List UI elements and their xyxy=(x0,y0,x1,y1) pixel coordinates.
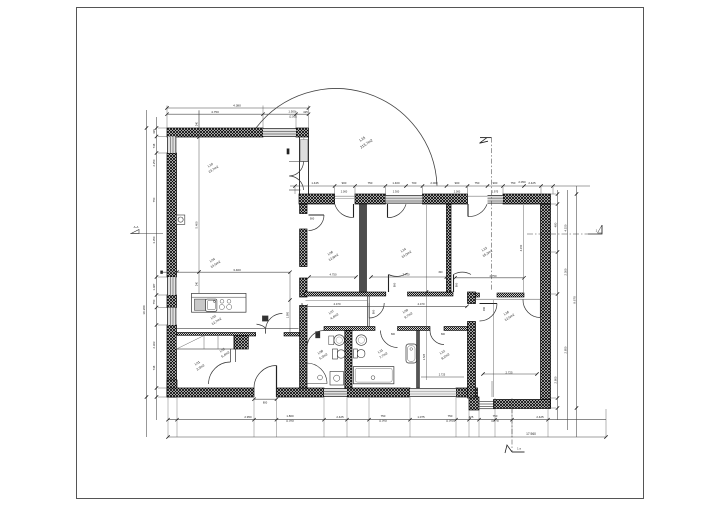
svg-text:2.000: 2.000 xyxy=(454,190,461,194)
svg-text:800: 800 xyxy=(455,282,459,287)
svg-text:1.400: 1.400 xyxy=(392,181,400,185)
svg-text:800: 800 xyxy=(263,401,268,405)
svg-text:2.425: 2.425 xyxy=(528,181,536,185)
svg-text:17.960: 17.960 xyxy=(526,432,536,436)
svg-text:1.525: 1.525 xyxy=(423,353,426,360)
svg-text:800: 800 xyxy=(391,333,396,336)
svg-text:2.850: 2.850 xyxy=(563,346,567,353)
svg-text:2.425: 2.425 xyxy=(336,415,344,419)
svg-text:800: 800 xyxy=(301,302,304,307)
svg-text:1 a: 1 a xyxy=(517,447,521,451)
svg-text:A-A: A-A xyxy=(134,225,139,229)
svg-text:4.750: 4.750 xyxy=(211,110,219,114)
svg-text:4.150: 4.150 xyxy=(563,224,567,231)
svg-text:2.250: 2.250 xyxy=(152,159,156,166)
svg-text:2.300: 2.300 xyxy=(563,268,567,275)
svg-text:3.400: 3.400 xyxy=(233,268,241,272)
svg-text:4.150: 4.150 xyxy=(519,244,523,251)
svg-text:700: 700 xyxy=(412,181,417,185)
svg-text:10.380: 10.380 xyxy=(142,305,146,315)
svg-text:738: 738 xyxy=(152,143,156,148)
svg-text:800: 800 xyxy=(393,282,397,287)
svg-text:425: 425 xyxy=(469,415,474,419)
svg-text:1.890: 1.890 xyxy=(287,311,290,318)
svg-text:425: 425 xyxy=(152,129,156,134)
svg-text:4.470: 4.470 xyxy=(334,302,341,306)
svg-text:480: 480 xyxy=(553,222,557,227)
svg-text:9.670: 9.670 xyxy=(572,296,576,304)
svg-text:3.700: 3.700 xyxy=(403,272,410,276)
svg-text:1.445: 1.445 xyxy=(311,181,319,185)
svg-text:4.380: 4.380 xyxy=(233,104,241,108)
svg-text:750: 750 xyxy=(152,197,156,202)
svg-text:4.750: 4.750 xyxy=(330,272,337,276)
svg-text:1.075: 1.075 xyxy=(417,415,425,419)
svg-text:900: 900 xyxy=(310,217,315,221)
svg-text:2.800: 2.800 xyxy=(553,376,557,383)
svg-text:2.725: 2.725 xyxy=(439,372,446,376)
svg-text:738: 738 xyxy=(152,365,156,370)
svg-text:2.363: 2.363 xyxy=(152,341,156,348)
svg-text:300: 300 xyxy=(438,271,443,274)
svg-text:900: 900 xyxy=(455,181,460,185)
svg-text:(2.000): (2.000) xyxy=(379,419,387,423)
svg-text:750: 750 xyxy=(368,181,373,185)
svg-text:(2.000): (2.000) xyxy=(446,419,454,423)
svg-text:800: 800 xyxy=(316,334,321,337)
svg-text:800: 800 xyxy=(372,309,376,314)
svg-text:2.300: 2.300 xyxy=(393,190,400,194)
svg-text:750: 750 xyxy=(493,414,498,418)
svg-text:2.425: 2.425 xyxy=(536,415,544,419)
svg-text:1.487: 1.487 xyxy=(152,283,156,290)
svg-text:900: 900 xyxy=(493,181,498,185)
svg-text:1.800: 1.800 xyxy=(286,414,294,418)
svg-text:2.950: 2.950 xyxy=(244,415,252,419)
svg-text:240: 240 xyxy=(196,281,199,286)
svg-text:750: 750 xyxy=(511,181,516,185)
svg-text:900: 900 xyxy=(342,181,347,185)
svg-text:750: 750 xyxy=(152,299,156,304)
svg-text:2.050: 2.050 xyxy=(518,180,526,184)
svg-text:425: 425 xyxy=(303,110,308,114)
svg-text:3.350: 3.350 xyxy=(152,236,156,243)
svg-text:1.975: 1.975 xyxy=(492,190,499,194)
svg-text:2.000: 2.000 xyxy=(341,190,348,194)
svg-text:4.470: 4.470 xyxy=(418,302,425,306)
svg-text:2.750: 2.750 xyxy=(490,274,497,278)
svg-text:750: 750 xyxy=(448,414,453,418)
svg-text:2.000: 2.000 xyxy=(430,181,438,185)
svg-text:5.400: 5.400 xyxy=(195,221,199,228)
svg-text:1.500: 1.500 xyxy=(288,110,296,114)
svg-text:800: 800 xyxy=(441,333,446,336)
svg-text:2.725: 2.725 xyxy=(506,371,513,375)
svg-text:750: 750 xyxy=(475,181,480,185)
svg-text:750: 750 xyxy=(381,414,386,418)
svg-text:900: 900 xyxy=(483,306,486,311)
svg-text:(2.050): (2.050) xyxy=(286,419,294,423)
svg-text:240: 240 xyxy=(196,121,199,126)
